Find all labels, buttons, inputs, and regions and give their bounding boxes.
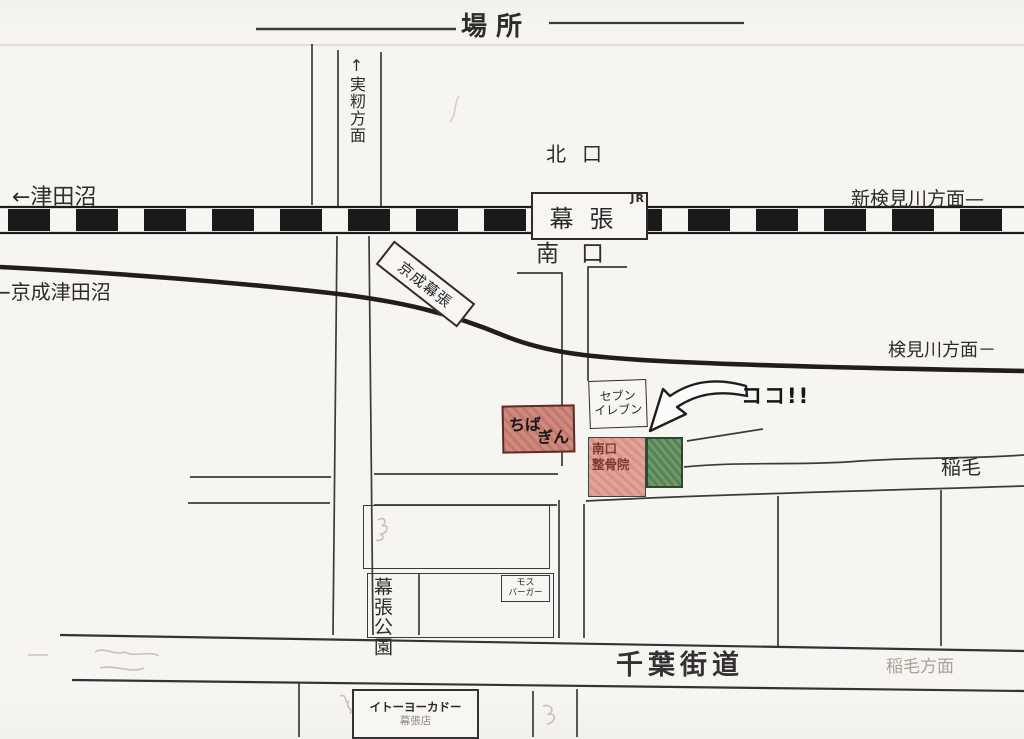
- makuhari-park-label: 幕張公園: [371, 577, 393, 635]
- to-kemigawa-label: 検見川方面－: [888, 336, 996, 362]
- chiba-kaido-label: 千葉街道: [616, 643, 744, 682]
- minamiguchi-seikotsuin-clinic: 南口 整骨院: [588, 437, 646, 497]
- page-title: 場所: [461, 6, 531, 43]
- inage-direction-label: 稲毛方面: [886, 652, 954, 677]
- jr-operator-label: JR: [630, 192, 645, 205]
- clinic-line1: 南口: [592, 441, 645, 457]
- mimomi-direction-label: ↑実籾方面: [344, 56, 368, 188]
- empty-city-block: [363, 505, 550, 569]
- destination-building: [646, 437, 683, 488]
- to-keisei-tsudanuma-label: ←京成津田沼: [0, 276, 111, 305]
- ito-yokado-store: イトーヨーカドー 幕張店: [352, 689, 479, 739]
- seven-eleven: セブン イレブン: [588, 379, 648, 429]
- seven-eleven-line2: イレブン: [594, 403, 642, 418]
- mos-burger-line2: バーガー: [508, 589, 542, 598]
- chiba-bank-line2: ぎん: [537, 423, 569, 448]
- clinic-line2: 整骨院: [592, 457, 645, 473]
- keisei-railway: [0, 267, 1024, 371]
- hand-drawn-map: 場所 ↑実籾方面 北口 ←津田沼 新検見川方面— 幕張 JR 南口 ←京成津田沼…: [0, 0, 1024, 739]
- station-name: 幕張: [550, 199, 630, 234]
- chiba-bank: ちば ぎん: [502, 404, 576, 453]
- inage-street-label: 稲毛: [941, 451, 981, 480]
- jr-makuhari-station: 幕張 JR: [531, 192, 648, 240]
- stray-mark: [450, 96, 459, 122]
- ito-yokado-line1: イトーヨーカドー: [370, 701, 462, 714]
- to-tsudanuma-label: ←津田沼: [12, 179, 96, 211]
- ito-yokado-line2: 幕張店: [400, 715, 432, 727]
- here-arrow-icon: [650, 381, 747, 431]
- here-marker-label: ココ!!: [741, 380, 810, 410]
- to-shin-kemigawa-label: 新検見川方面—: [851, 184, 984, 211]
- chiba-kaido-south-edge: [72, 680, 1024, 691]
- mos-burger: モス バーガー: [501, 575, 550, 602]
- north-exit-label: 北口: [546, 138, 618, 167]
